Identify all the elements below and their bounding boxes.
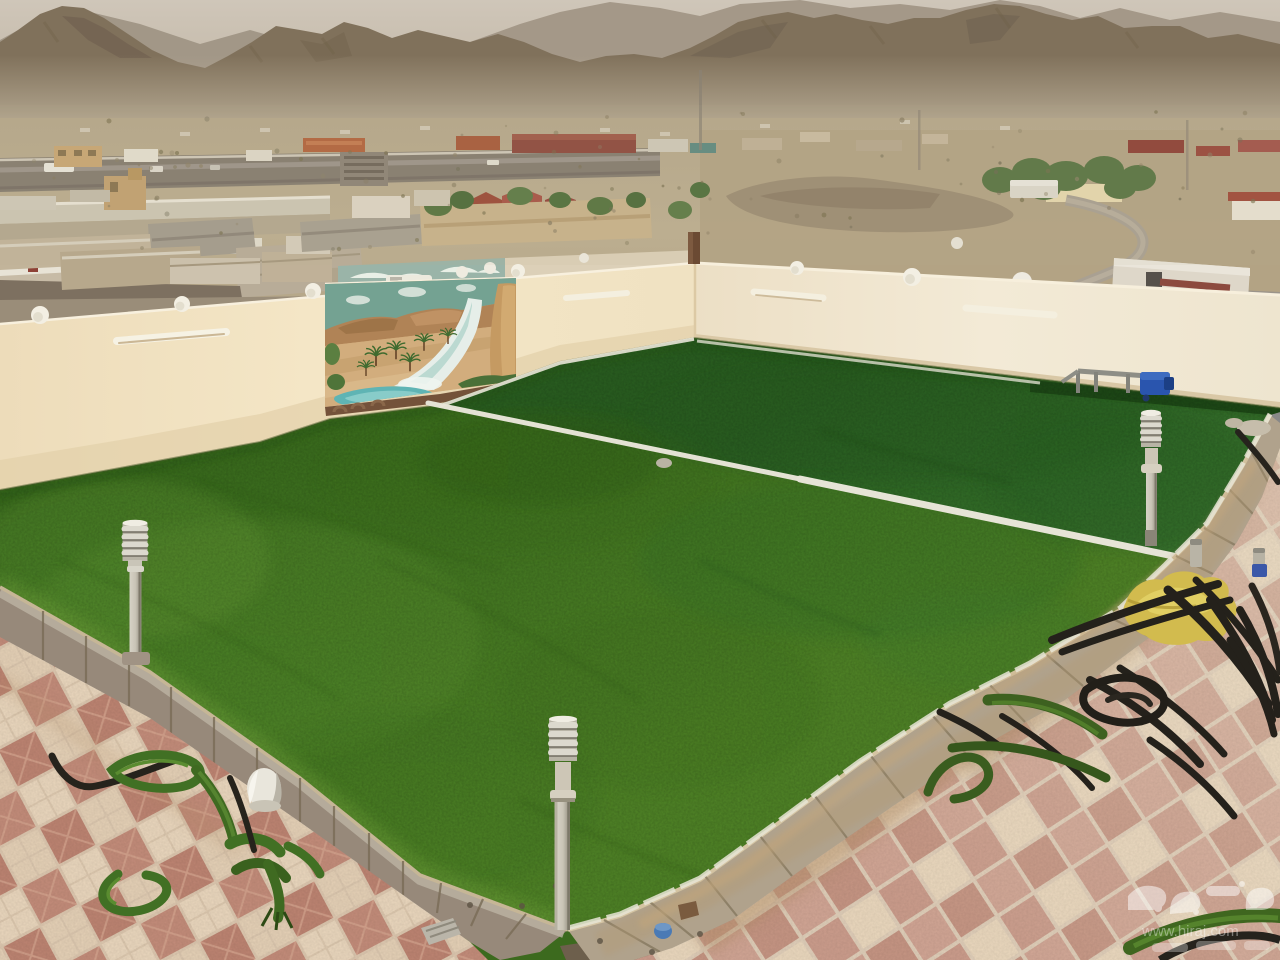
svg-text:www.hiraj.com: www.hiraj.com	[1141, 923, 1239, 940]
